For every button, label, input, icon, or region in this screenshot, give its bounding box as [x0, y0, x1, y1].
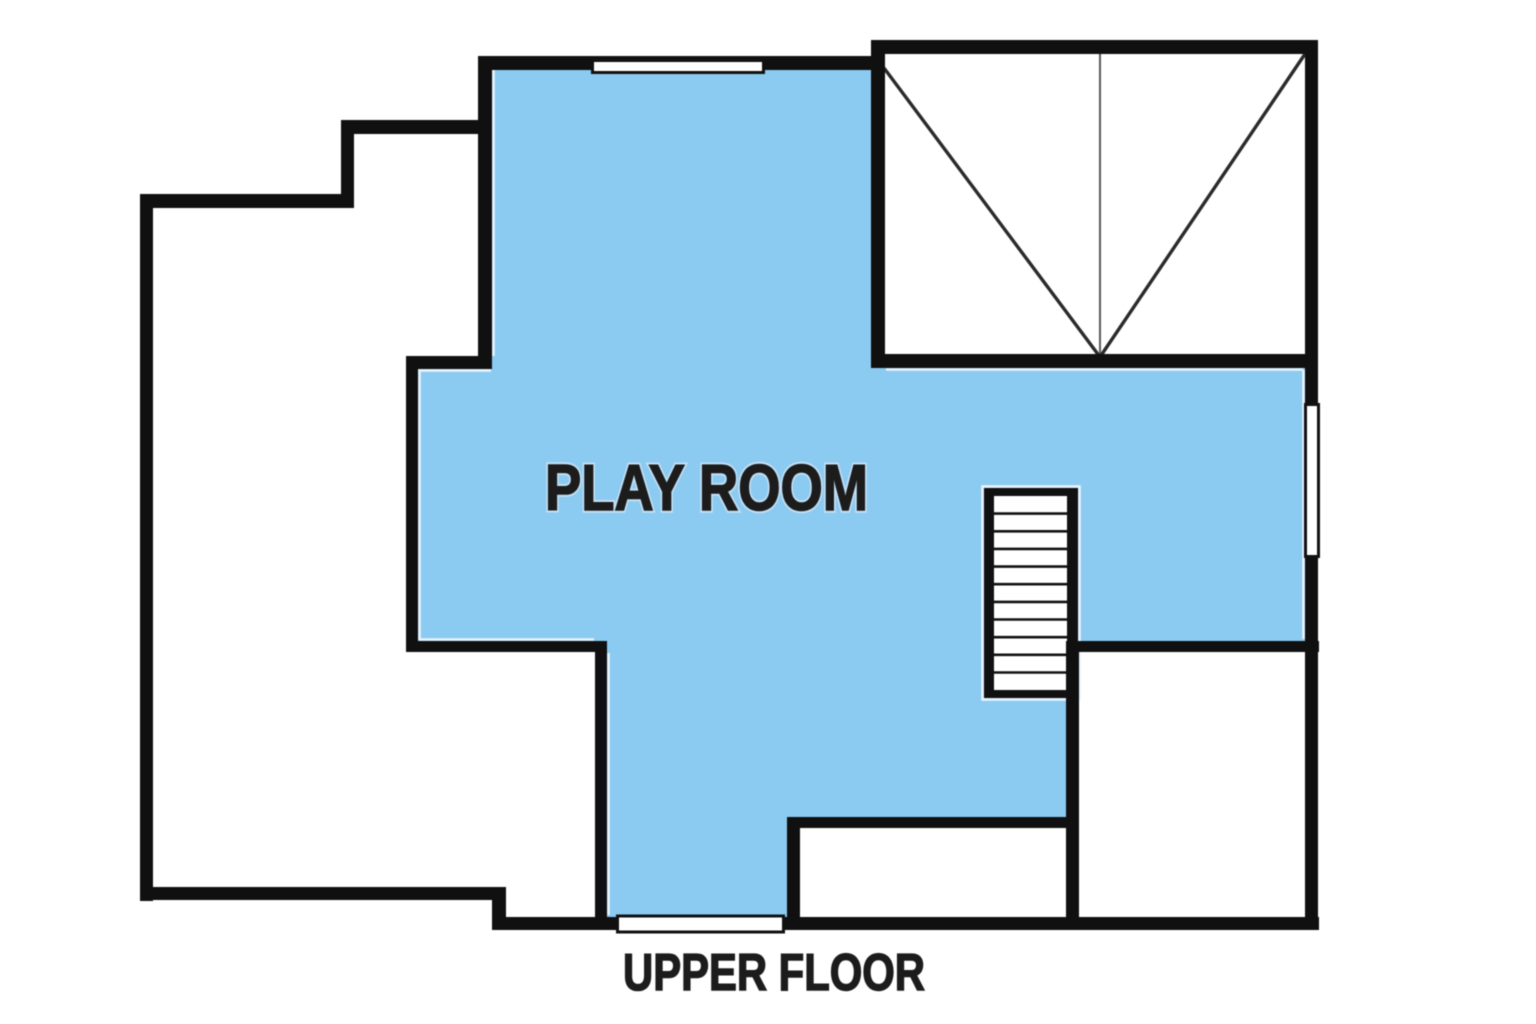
svg-text:UPPER FLOOR: UPPER FLOOR [623, 944, 925, 1002]
svg-text:PLAY ROOM: PLAY ROOM [545, 451, 868, 524]
